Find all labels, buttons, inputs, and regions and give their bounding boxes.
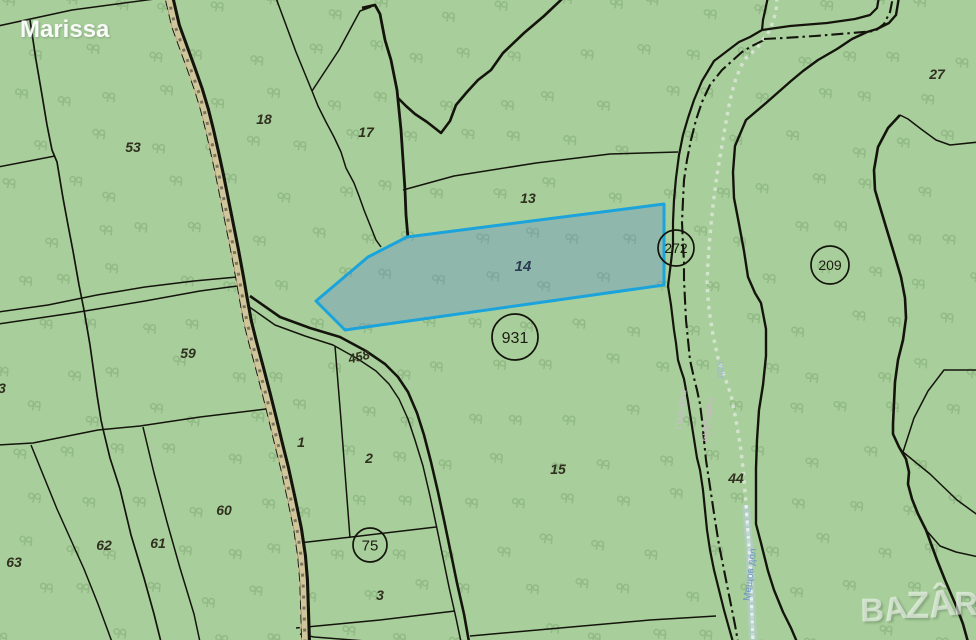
svg-text:17: 17 (358, 124, 375, 140)
svg-text:15: 15 (550, 461, 566, 477)
svg-text:1: 1 (297, 434, 305, 450)
svg-text:13: 13 (520, 190, 536, 206)
svg-text:60: 60 (216, 502, 232, 518)
svg-text:931: 931 (502, 330, 529, 347)
svg-text:61: 61 (150, 535, 166, 551)
svg-text:14: 14 (515, 258, 532, 275)
svg-text:44: 44 (727, 470, 744, 486)
svg-text:75: 75 (362, 537, 379, 554)
svg-text:53: 53 (125, 139, 141, 155)
svg-text:63: 63 (6, 554, 22, 570)
svg-text:27: 27 (928, 66, 946, 82)
svg-text:272: 272 (664, 240, 688, 256)
svg-text:18: 18 (256, 111, 272, 127)
svg-text:59: 59 (180, 345, 196, 361)
svg-text:62: 62 (96, 537, 112, 553)
svg-text:3: 3 (376, 587, 384, 603)
svg-text:2: 2 (364, 450, 373, 466)
svg-text:3: 3 (0, 380, 6, 396)
svg-text:209: 209 (818, 257, 842, 273)
svg-text:дол: дол (714, 360, 727, 378)
